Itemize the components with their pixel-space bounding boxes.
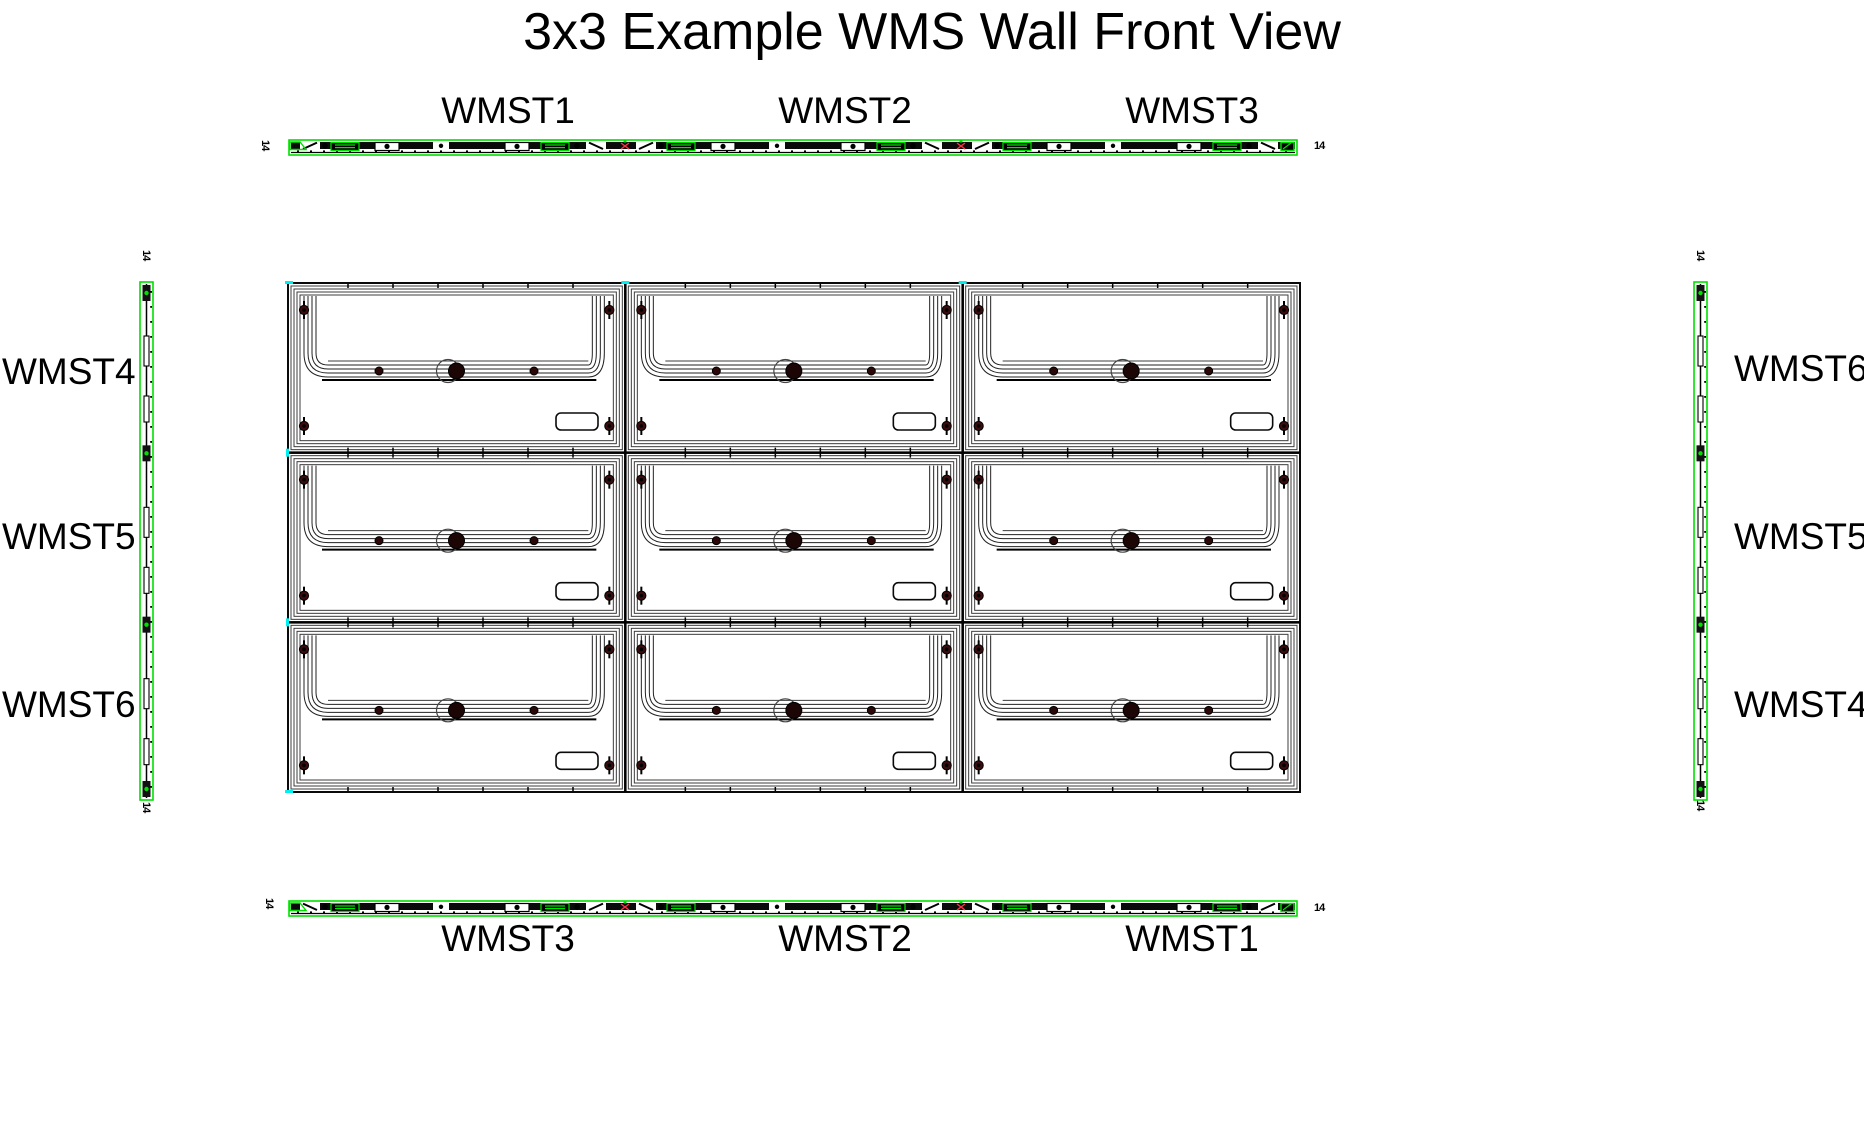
bottom-strip-label-3: WMST1 xyxy=(1125,920,1259,957)
balloon-marker-left-bottom: 14 xyxy=(140,802,151,812)
bottom-strip-label-1: WMST3 xyxy=(441,920,575,957)
page-title: 3x3 Example WMS Wall Front View xyxy=(523,2,1341,62)
balloon-marker-top-left: 14 xyxy=(259,140,270,150)
right-strip-label-1: WMST6 xyxy=(1734,350,1864,387)
wall-front-view-drawing: 3x3 Example WMS Wall Front View WMST1 WM… xyxy=(0,0,1864,1141)
right-strip-label-2: WMST5 xyxy=(1734,518,1864,555)
bottom-strip-label-2: WMST2 xyxy=(778,920,912,957)
balloon-marker-right-bottom: 14 xyxy=(1694,800,1705,810)
top-strip-label-1: WMST1 xyxy=(441,92,575,129)
left-strip-label-2: WMST5 xyxy=(2,518,126,555)
left-strip-label-3: WMST6 xyxy=(2,686,126,723)
top-strip-label-2: WMST2 xyxy=(778,92,912,129)
balloon-marker-bottom-left: 14 xyxy=(263,898,274,908)
left-strip-label-1: WMST4 xyxy=(2,353,126,390)
balloon-marker-right-top: 14 xyxy=(1694,250,1705,260)
top-strip-label-3: WMST3 xyxy=(1125,92,1259,129)
balloon-marker-top-right: 14 xyxy=(1314,141,1324,152)
balloon-marker-bottom-right: 14 xyxy=(1314,903,1324,914)
right-strip-label-3: WMST4 xyxy=(1734,686,1864,723)
balloon-marker-left-top: 14 xyxy=(140,250,151,260)
